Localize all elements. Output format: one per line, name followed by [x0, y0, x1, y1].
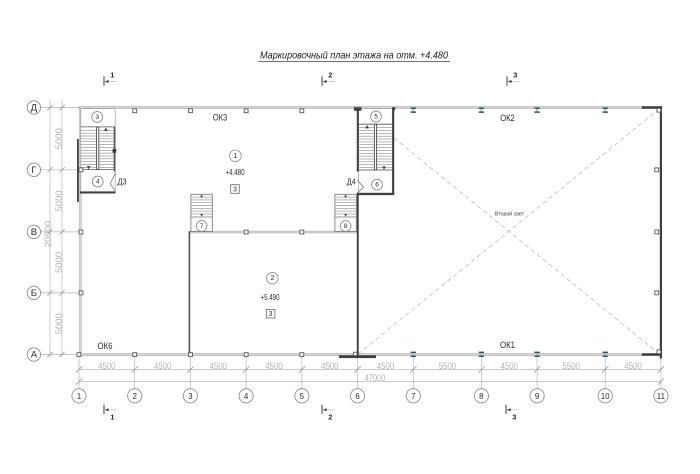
svg-text:5500: 5500 — [439, 361, 456, 372]
svg-text:Г: Г — [31, 165, 36, 176]
svg-text:20000: 20000 — [43, 221, 54, 247]
svg-text:9: 9 — [535, 392, 540, 401]
svg-text:4: 4 — [96, 179, 100, 186]
svg-text:2: 2 — [132, 392, 137, 401]
svg-text:1: 1 — [233, 153, 237, 160]
svg-text:Б: Б — [31, 288, 37, 299]
svg-text:8: 8 — [479, 392, 484, 401]
svg-text:1: 1 — [110, 71, 114, 80]
svg-text:47000: 47000 — [365, 373, 386, 384]
svg-text:5000: 5000 — [54, 252, 65, 273]
svg-text:4500: 4500 — [624, 361, 641, 372]
svg-text:7: 7 — [411, 392, 416, 401]
svg-text:8: 8 — [344, 223, 348, 230]
svg-text:1: 1 — [110, 413, 114, 422]
svg-text:5000: 5000 — [54, 190, 65, 211]
svg-text:1: 1 — [77, 392, 82, 401]
svg-text:Д4: Д4 — [347, 178, 356, 187]
svg-text:4500: 4500 — [210, 361, 227, 372]
svg-text:3: 3 — [188, 392, 193, 401]
svg-text:7: 7 — [200, 223, 204, 230]
svg-text:4500: 4500 — [321, 361, 338, 372]
svg-text:ОК3: ОК3 — [213, 113, 228, 123]
svg-text:Д3: Д3 — [118, 177, 128, 186]
svg-text:+5.490: +5.490 — [261, 293, 280, 302]
svg-text:Маркировочный план этажа на от: Маркировочный план этажа на отм. +4.480 — [260, 50, 448, 62]
svg-text:2: 2 — [270, 275, 274, 282]
svg-text:А: А — [31, 350, 38, 361]
svg-text:6: 6 — [355, 392, 360, 401]
svg-text:4500: 4500 — [154, 361, 171, 372]
svg-text:4: 4 — [244, 392, 249, 401]
svg-text:3: 3 — [95, 114, 99, 121]
svg-text:ОК2: ОК2 — [500, 113, 515, 123]
svg-text:ОК1: ОК1 — [500, 340, 515, 350]
svg-text:4500: 4500 — [501, 361, 518, 372]
svg-text:4500: 4500 — [265, 361, 282, 372]
svg-text:5: 5 — [374, 114, 378, 121]
svg-text:4500: 4500 — [377, 361, 394, 372]
svg-text:5: 5 — [300, 392, 305, 401]
svg-text:В: В — [31, 227, 37, 238]
svg-text:4500: 4500 — [98, 361, 115, 372]
svg-text:+4.480: +4.480 — [226, 168, 245, 177]
svg-text:3: 3 — [269, 311, 273, 318]
svg-text:2: 2 — [328, 71, 332, 80]
svg-text:5000: 5000 — [54, 128, 65, 149]
svg-text:11: 11 — [657, 392, 666, 401]
svg-text:6: 6 — [375, 182, 379, 189]
svg-text:ОК6: ОК6 — [98, 341, 113, 351]
svg-text:3: 3 — [513, 71, 517, 80]
svg-text:3: 3 — [512, 413, 516, 422]
svg-text:5500: 5500 — [563, 361, 580, 372]
svg-text:2: 2 — [328, 413, 332, 422]
svg-text:Д: Д — [31, 103, 38, 114]
svg-text:10: 10 — [601, 392, 610, 401]
svg-text:5000: 5000 — [54, 313, 65, 334]
svg-text:3: 3 — [233, 186, 237, 193]
svg-text:Второй свет: Второй свет — [495, 210, 524, 217]
